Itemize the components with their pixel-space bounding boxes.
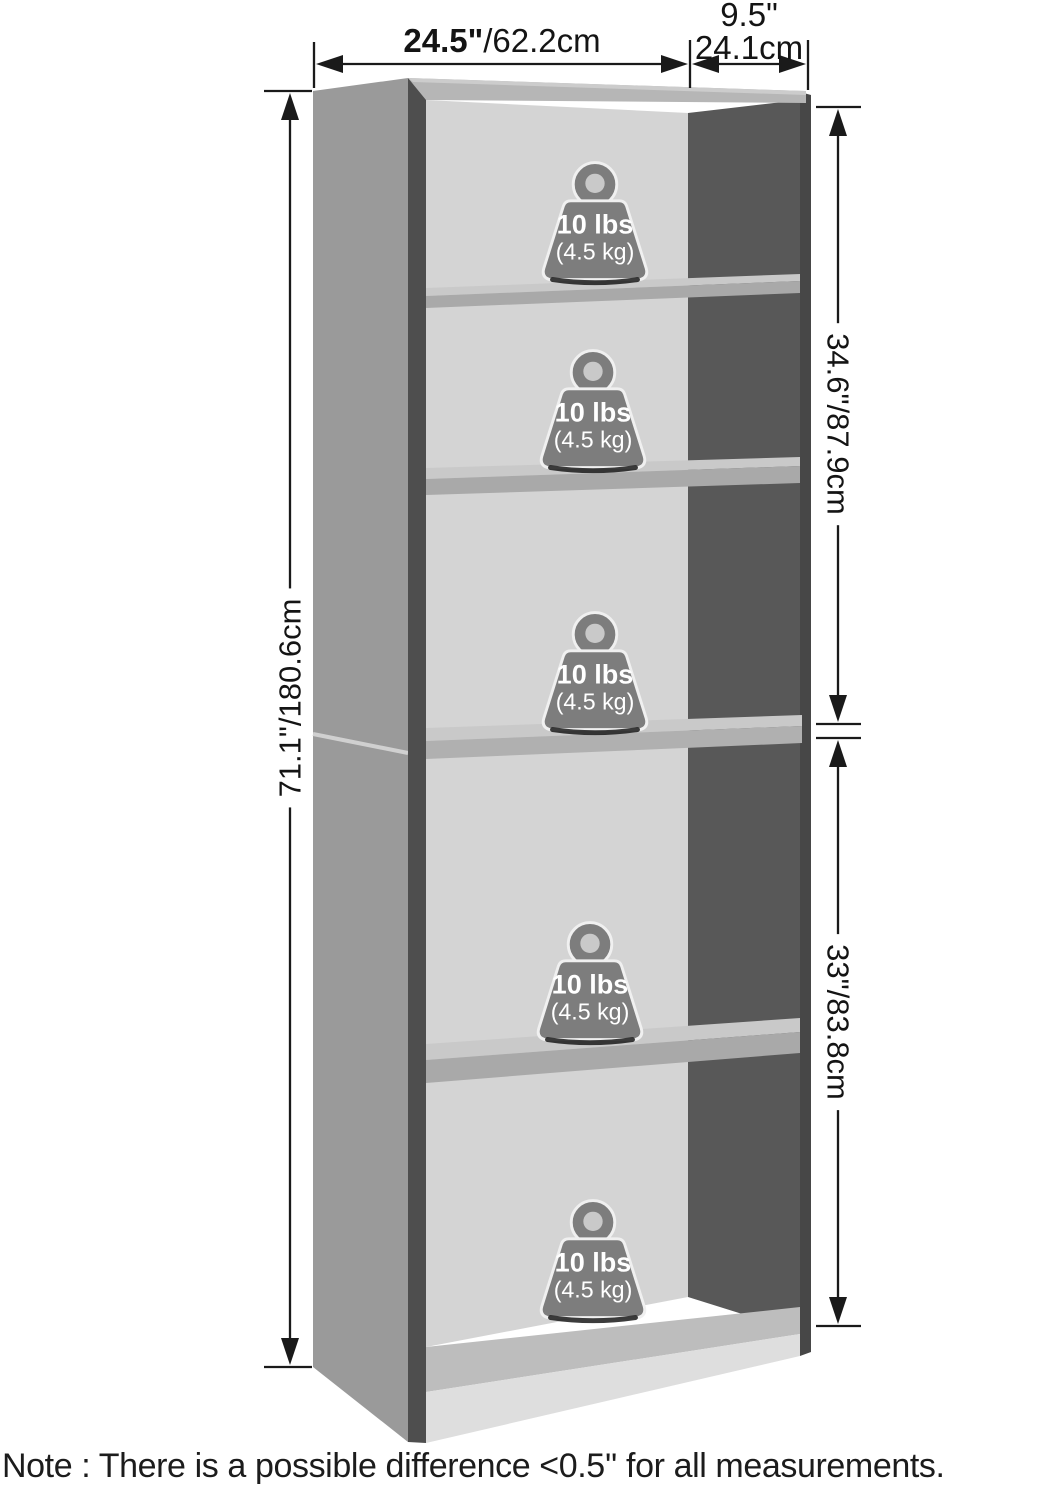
- left-side-panel: [313, 78, 408, 1442]
- weight-label: 10 lbs: [552, 970, 629, 1000]
- depth-inches-label: 9.5": [688, 0, 810, 33]
- lower-inches: 33": [821, 944, 856, 990]
- arrowhead-down: [281, 1338, 299, 1365]
- weight-icon: 10 lbs (4.5 kg): [535, 348, 651, 474]
- height-inches: 71.1": [273, 726, 308, 797]
- upper-section-dimension-label: 34.6"/87.9cm: [820, 323, 857, 525]
- weight-sublabel: (4.5 kg): [556, 689, 635, 715]
- weight-sublabel: (4.5 kg): [556, 239, 635, 265]
- arrowhead-down: [829, 695, 847, 722]
- lower-section-dimension-label: 33"/83.8cm: [820, 934, 857, 1110]
- bookcase-diagram: [0, 0, 1057, 1500]
- width-dimension-label: 24.5"/62.2cm: [314, 24, 690, 59]
- weight-label: 10 lbs: [557, 210, 634, 240]
- arrowhead-up: [829, 109, 847, 136]
- weight-label: 10 lbs: [555, 1248, 632, 1278]
- width-cm: /62.2cm: [483, 22, 600, 59]
- arrowhead-up: [829, 740, 847, 767]
- weight-sublabel: (4.5 kg): [551, 999, 630, 1025]
- upper-cm: /87.9cm: [821, 405, 856, 515]
- weight-sublabel: (4.5 kg): [554, 1277, 633, 1303]
- weight-label: 10 lbs: [555, 398, 632, 428]
- product-dimension-diagram: 10 lbs (4.5 kg) 10 lbs (4.5 kg) 10 lbs (…: [0, 0, 1057, 1500]
- width-inches: 24.5": [403, 22, 483, 59]
- weight-icon: 10 lbs (4.5 kg): [535, 1198, 651, 1324]
- weight-icon: 10 lbs (4.5 kg): [537, 610, 653, 736]
- depth-cm-label: 24.1cm: [688, 31, 810, 66]
- left-panel-front-edge: [408, 78, 426, 1443]
- lower-cm: /83.8cm: [821, 990, 856, 1100]
- arrowhead-up: [281, 93, 299, 120]
- arrowhead-down: [829, 1297, 847, 1324]
- height-dimension-label: 71.1"/180.6cm: [272, 589, 309, 808]
- height-cm: /180.6cm: [273, 599, 308, 727]
- measurement-note: Note : There is a possible difference <0…: [2, 1447, 945, 1486]
- weight-label: 10 lbs: [557, 660, 634, 690]
- weight-icon: 10 lbs (4.5 kg): [532, 920, 648, 1046]
- weight-icon: 10 lbs (4.5 kg): [537, 160, 653, 286]
- weight-sublabel: (4.5 kg): [554, 427, 633, 453]
- upper-inches: 34.6": [821, 333, 856, 404]
